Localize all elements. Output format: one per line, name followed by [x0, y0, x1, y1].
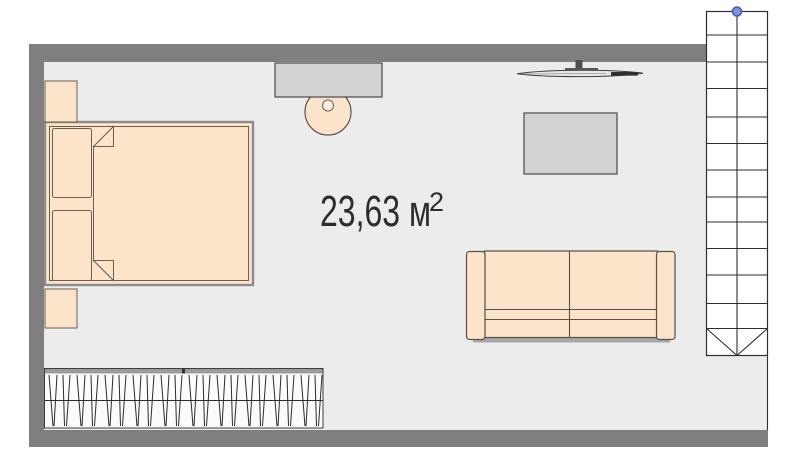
stool-center-knob: [323, 100, 334, 111]
pillow-top: [53, 129, 92, 198]
floor-plan-svg: 23,63 м 2: [0, 0, 800, 469]
sofa-armrest-right: [657, 252, 676, 340]
wardrobe-rail-tick: [182, 369, 185, 374]
wall-left: [29, 44, 44, 447]
floor-plan-canvas: 23,63 м 2: [0, 0, 800, 469]
wardrobe[interactable]: [45, 369, 324, 429]
tv-speaker-bar: [611, 72, 638, 76]
pillow-bottom: [53, 211, 92, 281]
area-superscript: 2: [429, 187, 444, 217]
bed[interactable]: [45, 122, 253, 285]
nightstand-bottom[interactable]: [45, 289, 77, 328]
nightstand-top[interactable]: [45, 81, 77, 122]
stairs[interactable]: [707, 7, 768, 356]
area-label: 23,63 м: [320, 187, 431, 236]
sofa-body: [485, 251, 658, 338]
stairs-selection-handle[interactable]: [733, 7, 742, 16]
wall-top: [29, 44, 706, 62]
desk[interactable]: [275, 63, 382, 97]
table[interactable]: [524, 113, 617, 174]
wall-bottom: [29, 430, 768, 447]
sofa-armrest-left: [467, 252, 486, 340]
sofa-shadow: [473, 338, 670, 343]
sofa[interactable]: [467, 251, 676, 343]
